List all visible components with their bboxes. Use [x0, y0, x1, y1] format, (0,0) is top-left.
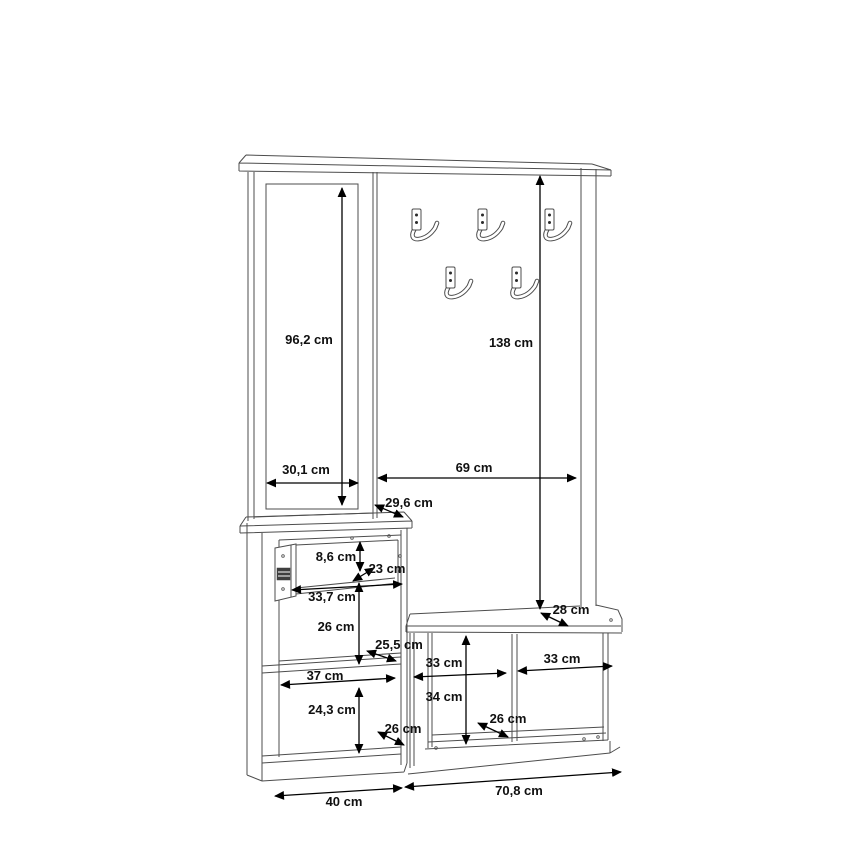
- coat-hook-icon: [446, 267, 471, 297]
- dimension-label: 40 cm: [326, 794, 363, 809]
- coat-hook-icon: [512, 267, 537, 297]
- dimension-label: 23 cm: [369, 561, 406, 576]
- dim-cabinet-top-depth: 29,6 cm: [375, 495, 433, 517]
- dim-bench-right-compartment-width: 33 cm: [518, 651, 612, 671]
- dimension-label: 33,7 cm: [308, 589, 356, 604]
- drawer-runner: [277, 568, 290, 580]
- screw-hole-icon: [610, 619, 613, 622]
- coat-hook-icon: [412, 209, 437, 239]
- left-side-panel: [248, 172, 254, 521]
- screw-hole-icon: [388, 535, 391, 538]
- dimension-label: 138 cm: [489, 335, 533, 350]
- cabinet-top: [240, 512, 412, 533]
- bench-left-edge: [410, 633, 414, 768]
- coat-hook-icon: [545, 209, 570, 239]
- dimension-label: 70,8 cm: [495, 783, 543, 798]
- dimension-label: 26 cm: [318, 619, 355, 634]
- screw-hole-icon: [583, 738, 586, 741]
- dimension-label: 34 cm: [426, 689, 463, 704]
- dimension-drawing-canvas: 96,2 cm138 cm30,1 cm69 cm29,6 cm8,6 cm23…: [0, 0, 868, 868]
- dim-bench-bottom-depth: 26 cm: [478, 711, 526, 737]
- wardrobe-technical-drawing: 96,2 cm138 cm30,1 cm69 cm29,6 cm8,6 cm23…: [0, 0, 868, 868]
- dimension-arrow: [367, 651, 396, 661]
- dimension-label: 29,6 cm: [385, 495, 433, 510]
- dimension-label: 8,6 cm: [316, 549, 356, 564]
- dimension-label: 28 cm: [553, 602, 590, 617]
- dimension-label: 25,5 cm: [375, 637, 423, 652]
- dim-bench-width: 70,8 cm: [405, 772, 621, 798]
- dimension-label: 24,3 cm: [308, 702, 356, 717]
- dim-mirror-width: 30,1 cm: [267, 462, 358, 483]
- cabinet-plinth: [262, 763, 407, 781]
- dimension-label: 26 cm: [490, 711, 527, 726]
- dimension-arrow: [518, 666, 612, 671]
- dimension-label: 69 cm: [456, 460, 493, 475]
- dimension-label: 33 cm: [544, 651, 581, 666]
- dimension-annotations: 96,2 cm138 cm30,1 cm69 cm29,6 cm8,6 cm23…: [267, 176, 621, 809]
- cabinet-bottom-shelf: [262, 747, 401, 763]
- dimension-label: 96,2 cm: [285, 332, 333, 347]
- screw-hole-icon: [597, 736, 600, 739]
- coat-hook-panel: [412, 209, 570, 297]
- coat-hook-icon: [478, 209, 503, 239]
- bench-plinth: [408, 741, 620, 774]
- dimension-label: 37 cm: [307, 668, 344, 683]
- dim-coat-panel-width: 69 cm: [378, 460, 576, 478]
- dim-drawer-height: 8,6 cm: [316, 542, 360, 571]
- dim-lower-compartment-height: 24,3 cm: [308, 688, 359, 753]
- dim-bench-top-depth: 28 cm: [541, 602, 589, 626]
- dim-mirror-height: 96,2 cm: [285, 188, 342, 505]
- dim-coat-panel-height: 138 cm: [489, 176, 540, 609]
- screw-hole-icon: [351, 537, 354, 540]
- dim-cabinet-bottom-depth: 26 cm: [378, 721, 421, 745]
- top-shelf: [239, 155, 611, 176]
- dimension-label: 30,1 cm: [282, 462, 330, 477]
- right-side-panel: [581, 168, 596, 607]
- screw-hole-icon: [399, 555, 402, 558]
- dim-cabinet-width: 40 cm: [275, 788, 402, 809]
- dimension-label: 33 cm: [426, 655, 463, 670]
- dimension-label: 26 cm: [385, 721, 422, 736]
